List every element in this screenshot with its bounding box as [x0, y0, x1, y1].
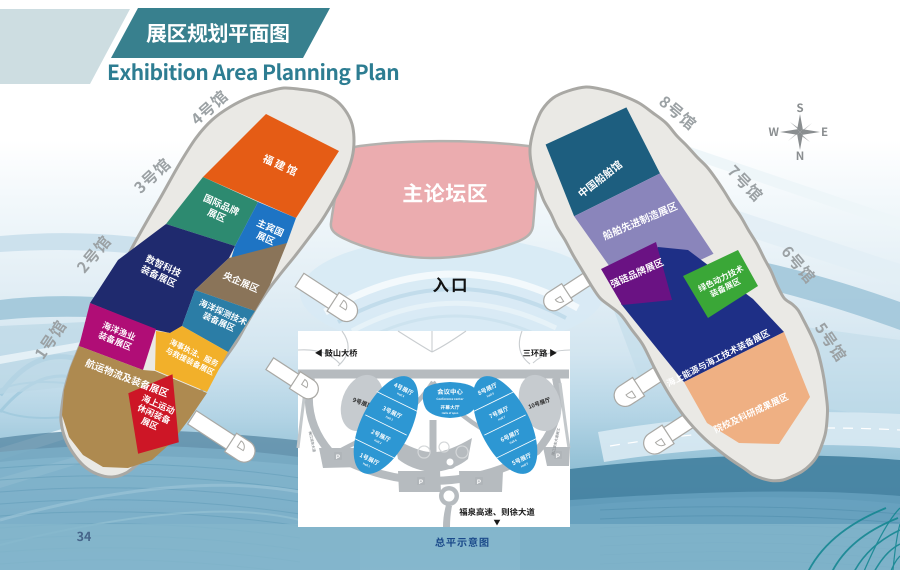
svg-text:P: P	[419, 479, 423, 486]
svg-text:P: P	[477, 479, 481, 486]
svg-text:P: P	[336, 454, 340, 461]
svg-text:P: P	[556, 453, 560, 460]
